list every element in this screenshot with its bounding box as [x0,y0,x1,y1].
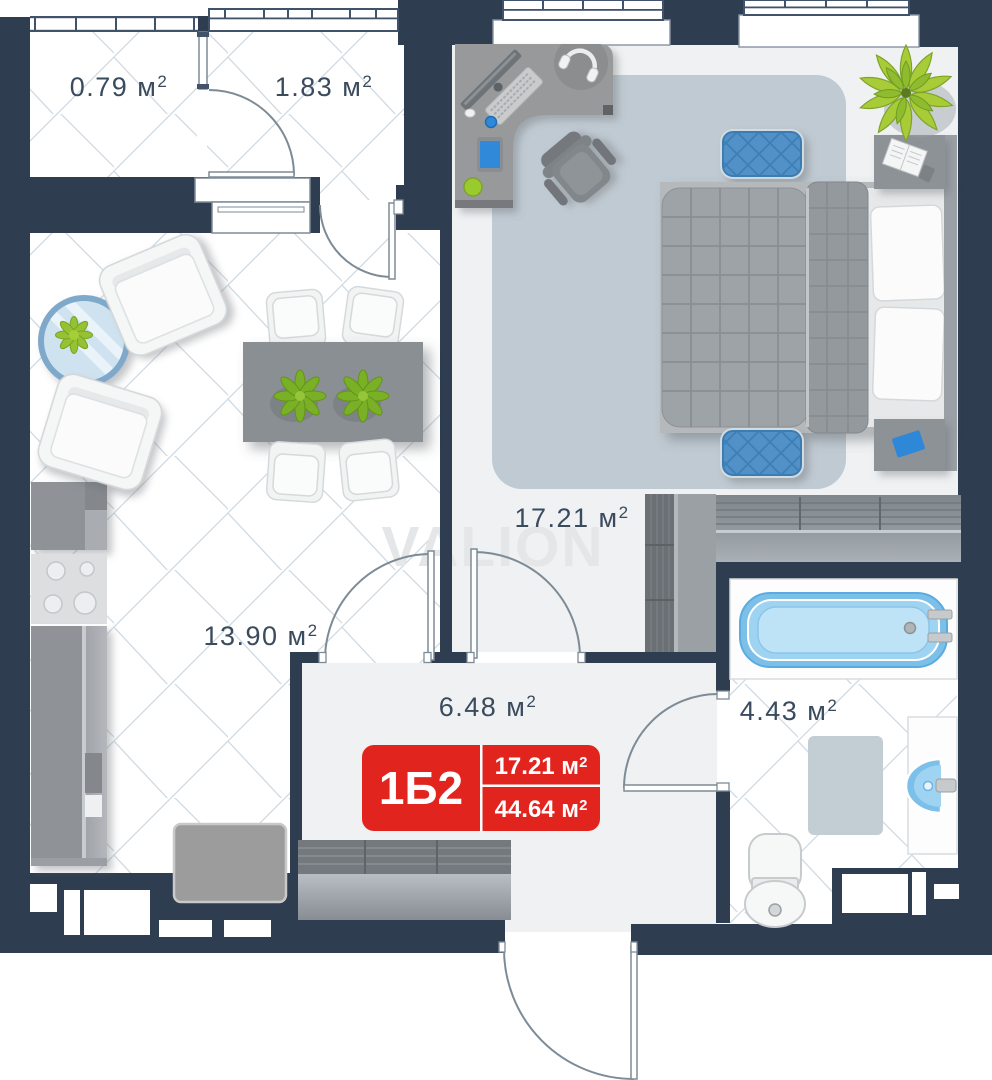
svg-text:44.64 м2: 44.64 м2 [495,796,588,823]
svg-text:17.21 м2: 17.21 м2 [495,753,588,780]
svg-text:6.48 м2: 6.48 м2 [439,692,538,722]
svg-text:13.90 м2: 13.90 м2 [203,621,318,651]
svg-text:1Б2: 1Б2 [379,762,463,814]
svg-text:17.21 м2: 17.21 м2 [514,503,629,533]
svg-text:1.83 м2: 1.83 м2 [275,72,374,102]
svg-text:0.79 м2: 0.79 м2 [70,72,169,102]
svg-text:4.43 м2: 4.43 м2 [740,696,839,726]
